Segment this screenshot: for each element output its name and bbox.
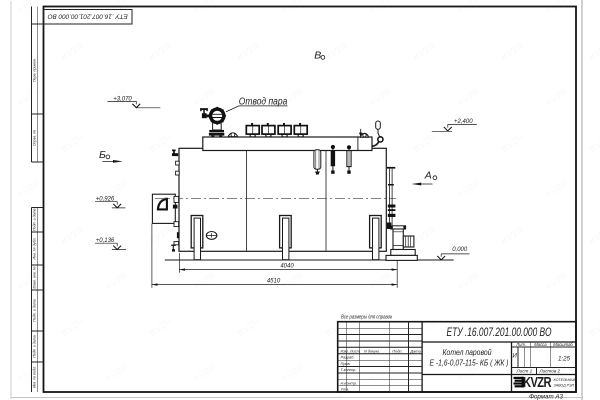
svg-text:4510: 4510 — [267, 279, 281, 285]
svg-text:Подп.: Подп. — [392, 348, 402, 353]
svg-text:Пров.: Пров. — [341, 361, 351, 366]
svg-text:ЗАВОД РЭП: ЗАВОД РЭП — [554, 383, 575, 387]
svg-text:KVZR: KVZR — [16, 0, 42, 16]
svg-text:KVZR: KVZR — [104, 270, 130, 292]
svg-text:KVZR: KVZR — [544, 270, 570, 292]
svg-text:KVZR: KVZR — [456, 0, 482, 16]
svg-text:KVZR: KVZR — [60, 316, 86, 338]
svg-text:Масштаб: Масштаб — [553, 342, 573, 347]
svg-text:ЕТУ .16.007.201.00.000 ВО: ЕТУ .16.007.201.00.000 ВО — [47, 12, 128, 19]
svg-text:KVZR: KVZR — [236, 316, 262, 338]
svg-text:KVZR: KVZR — [544, 86, 570, 108]
svg-text:KVZR: KVZR — [236, 40, 262, 62]
svg-text:Е -1,6-0,07-115- КБ ( ЖК ): Е -1,6-0,07-115- КБ ( ЖК ) — [430, 359, 509, 368]
svg-text:Инв. № дубл.: Инв. № дубл. — [33, 237, 37, 259]
svg-text:Перв. примен.: Перв. примен. — [33, 58, 37, 82]
svg-text:Подп. и дата: Подп. и дата — [33, 299, 37, 322]
svg-text:KVZR: KVZR — [16, 178, 42, 200]
svg-text:KVZR: KVZR — [412, 132, 438, 154]
svg-text:KVZR: KVZR — [456, 86, 482, 108]
svg-text:KVZR: KVZR — [192, 0, 218, 16]
svg-text:KVZR: KVZR — [280, 0, 306, 16]
svg-text:Лит.: Лит. — [515, 342, 526, 347]
svg-text:В: В — [314, 50, 321, 62]
svg-text:KVZR: KVZR — [148, 132, 174, 154]
svg-text:KVZR: KVZR — [500, 132, 526, 154]
svg-text:KVZR: KVZR — [500, 224, 526, 246]
svg-text:Подп. и дата: Подп. и дата — [33, 208, 37, 231]
svg-text:Листов 2: Листов 2 — [539, 369, 561, 374]
svg-text:KVZR: KVZR — [16, 86, 42, 108]
svg-text:KVZR: KVZR — [412, 224, 438, 246]
svg-text:KVZR: KVZR — [368, 0, 394, 16]
svg-text:KVZR: KVZR — [280, 270, 306, 292]
svg-text:KVZR: KVZR — [456, 178, 482, 200]
svg-text:KVZR: KVZR — [588, 224, 600, 246]
svg-text:KVZR: KVZR — [544, 0, 570, 16]
svg-text:KVZR: KVZR — [148, 40, 174, 62]
svg-text:И: И — [513, 354, 518, 360]
svg-text:Взам. инв. №: Взам. инв. № — [33, 266, 37, 288]
svg-text:KVZR: KVZR — [16, 362, 42, 384]
svg-text:Изм. Лист: Изм. Лист — [341, 348, 361, 353]
svg-text:+2,400: +2,400 — [454, 119, 473, 125]
svg-text:KVZR: KVZR — [16, 270, 42, 292]
svg-text:Б: Б — [99, 149, 106, 161]
svg-text:Котел паровой: Котел паровой — [443, 348, 492, 357]
svg-text:KVZR: KVZR — [412, 40, 438, 62]
svg-text:Утв.: Утв. — [341, 387, 350, 392]
svg-text:KVZR: KVZR — [192, 270, 218, 292]
svg-text:KVZR: KVZR — [500, 40, 526, 62]
svg-text:KVZR: KVZR — [368, 86, 394, 108]
svg-text:KVZR: KVZR — [60, 40, 86, 62]
svg-text:KVZR: KVZR — [588, 316, 600, 338]
svg-text:KVZR: KVZR — [192, 86, 218, 108]
svg-text:KVZR: KVZR — [60, 224, 86, 246]
svg-text:KVZR: KVZR — [104, 362, 130, 384]
svg-text:Дата: Дата — [409, 348, 421, 353]
svg-text:Формат А3: Формат А3 — [529, 394, 563, 400]
svg-text:0,000: 0,000 — [452, 247, 468, 253]
svg-text:KVZR: KVZR — [544, 178, 570, 200]
svg-text:Т.контр.: Т.контр. — [341, 367, 357, 372]
svg-text:+0,136: +0,136 — [96, 238, 115, 244]
svg-text:Справ. №: Справ. № — [33, 130, 37, 146]
svg-text:Н.контр.: Н.контр. — [341, 381, 357, 386]
svg-text:+3,070: +3,070 — [113, 96, 132, 102]
svg-text:KVZR: KVZR — [456, 270, 482, 292]
svg-text:KVZR: KVZR — [60, 132, 86, 154]
svg-text:KVZR: KVZR — [324, 40, 350, 62]
svg-text:КОТЕЛЬНЫЙ: КОТЕЛЬНЫЙ — [554, 378, 577, 382]
svg-text:KVZR: KVZR — [523, 375, 552, 391]
svg-text:Масса: Масса — [534, 342, 547, 347]
svg-text:1:25: 1:25 — [558, 355, 571, 362]
svg-text:KVZR: KVZR — [280, 362, 306, 384]
svg-text:KVZR: KVZR — [192, 362, 218, 384]
svg-text:Подп. и дата: Подп. и дата — [33, 335, 37, 358]
svg-text:4040: 4040 — [280, 264, 294, 270]
svg-text:KVZR: KVZR — [148, 316, 174, 338]
svg-text:N докум.: N докум. — [364, 348, 380, 353]
svg-text:Инв. № подл.: Инв. № подл. — [33, 366, 37, 388]
svg-text:А: А — [424, 170, 432, 182]
svg-text:KVZR: KVZR — [368, 270, 394, 292]
svg-text:Лист 1: Лист 1 — [516, 369, 533, 374]
svg-text:Все размеры для справок: Все размеры для справок — [341, 314, 393, 320]
svg-text:ЕТУ .16.007.201.00.000 ВО: ЕТУ .16.007.201.00.000 ВО — [447, 327, 552, 339]
svg-text:KVZR: KVZR — [588, 40, 600, 62]
svg-text:KVZR: KVZR — [148, 224, 174, 246]
svg-text:+0,926: +0,926 — [96, 197, 115, 203]
svg-text:Разраб.: Разраб. — [341, 354, 355, 359]
svg-text:KVZR: KVZR — [588, 132, 600, 154]
